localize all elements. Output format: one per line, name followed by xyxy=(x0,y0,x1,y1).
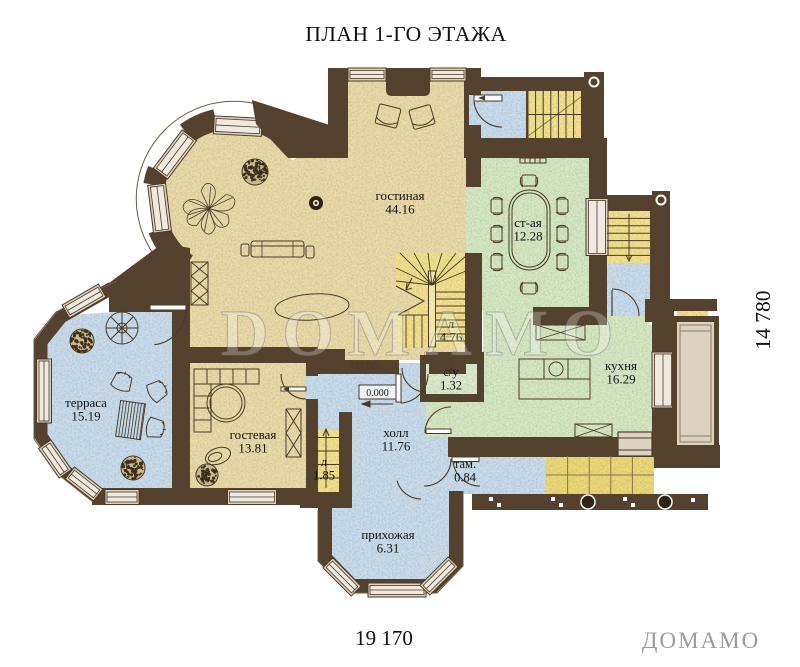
svg-text:ПЛАН 1-ГО ЭТАЖА: ПЛАН 1-ГО ЭТАЖА xyxy=(305,22,506,46)
svg-text:1.85: 1.85 xyxy=(313,469,335,483)
svg-text:0.000: 0.000 xyxy=(366,388,389,399)
svg-text:0.84: 0.84 xyxy=(454,471,477,485)
svg-text:12.28: 12.28 xyxy=(513,229,542,244)
svg-text:19 170: 19 170 xyxy=(355,626,413,650)
svg-text:11.76: 11.76 xyxy=(382,439,411,454)
svg-text:16.29: 16.29 xyxy=(606,372,635,387)
svg-text:13.81: 13.81 xyxy=(238,441,267,456)
svg-text:DOMAMO: DOMAMO xyxy=(221,297,628,370)
svg-text:6.31: 6.31 xyxy=(377,541,400,556)
svg-text:там.: там. xyxy=(454,457,476,471)
svg-text:л: л xyxy=(321,455,327,469)
svg-text:1.32: 1.32 xyxy=(440,379,462,393)
svg-text:15.19: 15.19 xyxy=(71,409,100,424)
svg-text:ДОМАМО: ДОМАМО xyxy=(642,628,760,653)
svg-text:44.16: 44.16 xyxy=(385,202,415,217)
svg-text:14 780: 14 780 xyxy=(751,290,775,349)
